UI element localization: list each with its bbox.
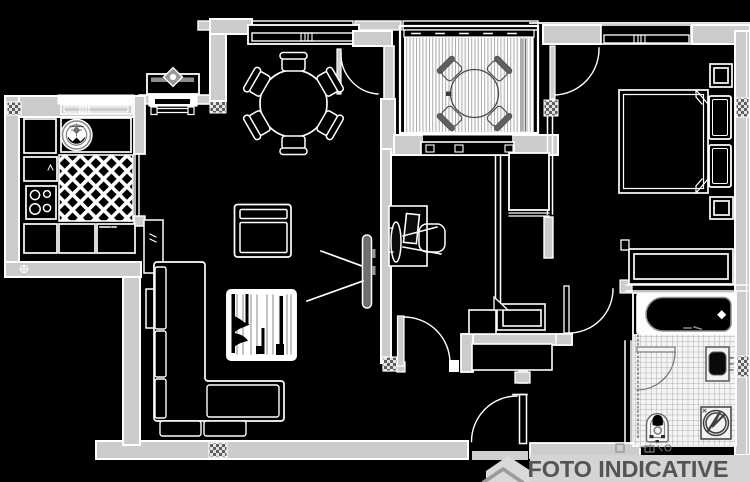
svg-text:FOTO INDICATIVE: FOTO INDICATIVE [528, 456, 729, 482]
